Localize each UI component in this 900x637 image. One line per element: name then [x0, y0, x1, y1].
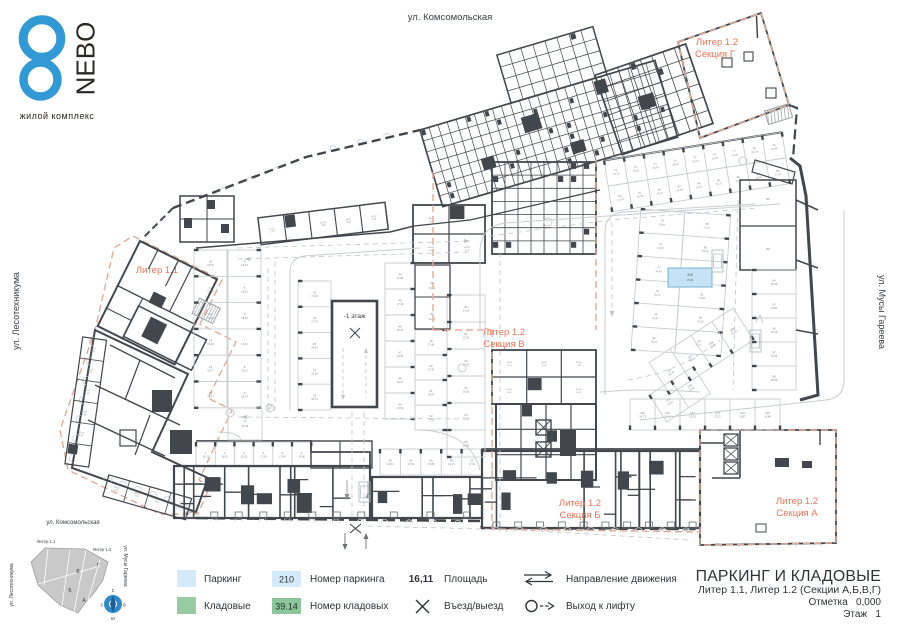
svg-text:13: 13: [209, 339, 213, 343]
svg-text:51: 51: [429, 389, 433, 393]
svg-text:ул. Комсомольская: ул. Комсомольская: [408, 12, 493, 23]
svg-text:ул. Лесотехникума: ул. Лесотехникума: [11, 272, 21, 350]
svg-text:Литер 1.2: Литер 1.2: [776, 496, 818, 507]
svg-text:14,49: 14,49: [655, 269, 662, 273]
svg-text:4: 4: [262, 451, 264, 455]
svg-text:45: 45: [398, 299, 402, 303]
svg-text:ПАРКИНГ И КЛАДОВЫЕ: ПАРКИНГ И КЛАДОВЫЕ: [696, 568, 881, 585]
svg-text:13,20: 13,20: [463, 417, 470, 421]
svg-text:Секция В: Секция В: [483, 339, 524, 350]
svg-text:4,78: 4,78: [134, 495, 139, 498]
svg-text:13,68: 13,68: [298, 455, 305, 459]
svg-text:9,58: 9,58: [542, 365, 547, 367]
svg-text:Г: Г: [97, 563, 100, 569]
svg-text:3,80: 3,80: [321, 225, 326, 228]
svg-text:17,40: 17,40: [469, 462, 476, 466]
svg-text:7: 7: [244, 339, 246, 343]
svg-text:13,30: 13,30: [689, 415, 696, 419]
svg-text:18: 18: [313, 290, 317, 294]
svg-text:7,90: 7,90: [577, 365, 582, 367]
svg-text:22: 22: [313, 394, 317, 398]
svg-text:42.03: 42.03: [576, 389, 582, 391]
svg-text:50.09: 50.09: [428, 247, 434, 249]
svg-text:13,11: 13,11: [241, 368, 248, 372]
svg-text:104: 104: [740, 411, 745, 415]
svg-text:14,27: 14,27: [397, 380, 404, 384]
svg-text:60: 60: [464, 305, 468, 309]
svg-text:13,70: 13,70: [654, 292, 661, 296]
svg-text:13,43: 13,43: [279, 455, 286, 459]
svg-text:13,26: 13,26: [463, 309, 470, 313]
svg-text:15,56: 15,56: [771, 282, 778, 286]
svg-text:Направление движения: Направление движения: [566, 574, 677, 585]
svg-text:54: 54: [409, 459, 413, 463]
svg-text:64: 64: [464, 413, 468, 417]
svg-text:14,73: 14,73: [639, 415, 646, 419]
svg-text:15,59: 15,59: [702, 249, 709, 253]
svg-text:6: 6: [301, 451, 303, 455]
svg-text:61: 61: [464, 332, 468, 336]
svg-text:48: 48: [398, 377, 402, 381]
svg-text:16,54: 16,54: [397, 406, 404, 410]
svg-text:Литер 1.2: Литер 1.2: [483, 327, 525, 338]
svg-text:13,72: 13,72: [714, 415, 721, 419]
svg-text:15: 15: [209, 391, 213, 395]
svg-text:15,89: 15,89: [428, 462, 435, 466]
svg-text:13,47: 13,47: [652, 316, 659, 320]
svg-text:3: 3: [243, 451, 245, 455]
svg-text:19: 19: [313, 316, 317, 320]
svg-text:14: 14: [209, 365, 213, 369]
svg-text:17,49: 17,49: [397, 302, 404, 306]
svg-text:13,19: 13,19: [463, 336, 470, 340]
svg-text:15,54: 15,54: [241, 316, 248, 320]
svg-text:Этаж 1: Этаж 1: [843, 609, 881, 620]
svg-text:18,67: 18,67: [739, 415, 746, 419]
svg-text:17,38: 17,38: [260, 455, 267, 459]
svg-text:ул. Комсомольская: ул. Комсомольская: [46, 520, 99, 526]
svg-text:жилой комплекс: жилой комплекс: [20, 111, 95, 121]
svg-text:11: 11: [209, 286, 212, 290]
svg-text:63: 63: [464, 386, 468, 390]
svg-text:13,65: 13,65: [311, 371, 318, 375]
svg-text:15,20: 15,20: [241, 455, 248, 459]
svg-text:210: 210: [279, 575, 294, 585]
svg-text:77: 77: [657, 266, 661, 270]
svg-text:100: 100: [640, 411, 645, 415]
svg-text:39.14: 39.14: [275, 602, 298, 612]
svg-text:95: 95: [772, 303, 776, 307]
svg-text:ул. Мусы Гареева: ул. Мусы Гареева: [122, 545, 128, 586]
svg-text:14,15: 14,15: [448, 462, 455, 466]
svg-text:16,69: 16,69: [658, 222, 665, 226]
svg-text:4,10: 4,10: [465, 250, 470, 252]
svg-text:18,21: 18,21: [222, 455, 229, 459]
svg-text:Секция А: Секция А: [776, 508, 818, 519]
svg-text:5,42: 5,42: [577, 392, 582, 394]
svg-text:14,47: 14,47: [207, 395, 214, 399]
svg-text:6: 6: [244, 312, 246, 316]
svg-text:20: 20: [313, 342, 317, 346]
svg-text:Секция Г: Секция Г: [695, 49, 735, 60]
svg-text:18,37: 18,37: [397, 328, 404, 332]
svg-text:18,47: 18,47: [428, 393, 435, 397]
svg-text:14,35: 14,35: [207, 316, 214, 320]
svg-text:Литер 1.2: Литер 1.2: [559, 498, 601, 509]
svg-text:101: 101: [665, 411, 670, 415]
svg-text:18,73: 18,73: [311, 397, 318, 401]
svg-text:44: 44: [398, 273, 402, 277]
svg-text:13,84: 13,84: [698, 296, 705, 300]
svg-text:94: 94: [772, 279, 776, 283]
svg-text:5,76: 5,76: [85, 392, 90, 395]
svg-text:13,42: 13,42: [241, 342, 248, 346]
svg-text:53: 53: [389, 459, 393, 463]
svg-text:17,41: 17,41: [428, 368, 435, 372]
svg-text:12: 12: [209, 312, 213, 316]
svg-text:97: 97: [772, 351, 776, 355]
svg-text:49: 49: [429, 339, 433, 343]
svg-text:56: 56: [450, 459, 454, 463]
svg-text:13,68: 13,68: [428, 418, 435, 422]
svg-text:92: 92: [699, 316, 703, 320]
svg-text:Литер 1.2: Литер 1.2: [696, 37, 738, 48]
svg-text:в: в: [123, 603, 126, 609]
svg-text:9: 9: [244, 391, 246, 395]
svg-text:7,37: 7,37: [270, 231, 275, 234]
svg-text:17,63: 17,63: [407, 462, 414, 466]
svg-text:105: 105: [765, 411, 770, 415]
svg-text:Кладовые: Кладовые: [204, 601, 251, 612]
svg-text:62: 62: [464, 359, 468, 363]
svg-text:Литер 1.2: Литер 1.2: [93, 547, 112, 552]
svg-text:15,90: 15,90: [207, 342, 214, 346]
svg-text:NEBO: NEBO: [71, 22, 101, 96]
svg-text:42.09: 42.09: [507, 362, 513, 364]
svg-text:Отметка 0,000: Отметка 0,000: [808, 597, 881, 608]
svg-text:17,60: 17,60: [397, 276, 404, 280]
svg-text:4,36: 4,36: [507, 392, 512, 394]
svg-text:15,12: 15,12: [202, 455, 209, 459]
svg-text:з: з: [100, 603, 103, 609]
svg-text:16,48: 16,48: [764, 415, 771, 419]
svg-text:96: 96: [772, 327, 776, 331]
svg-text:Выход к лифту: Выход к лифту: [566, 600, 635, 612]
svg-text:210: 210: [687, 273, 693, 277]
svg-text:15,77: 15,77: [207, 368, 214, 372]
svg-text:3,39: 3,39: [82, 414, 87, 417]
svg-text:5: 5: [282, 451, 284, 455]
svg-text:ул. Мусы Гареева: ул. Мусы Гареева: [877, 275, 887, 349]
svg-text:8: 8: [244, 365, 246, 369]
svg-text:18,75: 18,75: [771, 330, 778, 334]
svg-text:13,30: 13,30: [207, 263, 214, 267]
svg-text:49: 49: [398, 403, 402, 407]
svg-text:18,32: 18,32: [241, 289, 248, 293]
svg-text:52: 52: [429, 414, 433, 418]
svg-text:46: 46: [398, 325, 402, 329]
svg-text:88: 88: [705, 222, 709, 226]
svg-text:Номер паркинга: Номер паркинга: [310, 574, 385, 585]
svg-text:Въезд/выезд: Въезд/выезд: [444, 601, 503, 612]
svg-text:3,70: 3,70: [507, 365, 512, 367]
svg-text:8: 8: [244, 419, 246, 423]
svg-text:25,29: 25,29: [242, 424, 249, 428]
svg-text:16,74: 16,74: [241, 263, 248, 267]
svg-text:14,53: 14,53: [397, 354, 404, 358]
svg-text:18,56: 18,56: [771, 378, 778, 382]
svg-text:55: 55: [429, 459, 433, 463]
svg-text:14,87: 14,87: [771, 306, 778, 310]
svg-text:86: 86: [766, 197, 770, 201]
svg-text:2: 2: [224, 451, 226, 455]
svg-text:Литер 1.1: Литер 1.1: [37, 539, 56, 544]
svg-text:17,46: 17,46: [428, 343, 435, 347]
svg-text:с: с: [112, 588, 115, 594]
svg-text:15,24: 15,24: [771, 354, 778, 358]
svg-text:14,67: 14,67: [311, 346, 318, 350]
svg-text:ю: ю: [111, 616, 115, 622]
svg-text:15,16: 15,16: [207, 289, 214, 293]
svg-text:Секция Б: Секция Б: [559, 510, 600, 521]
svg-text:23,70: 23,70: [429, 317, 436, 321]
svg-text:75: 75: [660, 219, 664, 223]
svg-text:17,34: 17,34: [311, 294, 318, 298]
svg-text:-1 этаж: -1 этаж: [344, 313, 366, 320]
svg-text:15,36: 15,36: [687, 278, 694, 282]
svg-text:17,67: 17,67: [703, 225, 710, 229]
svg-text:14,31: 14,31: [429, 286, 436, 290]
svg-text:5: 5: [244, 286, 246, 290]
svg-text:13,28: 13,28: [697, 319, 704, 323]
svg-text:13,74: 13,74: [241, 395, 248, 399]
svg-text:89: 89: [766, 247, 770, 251]
svg-text:Площадь: Площадь: [444, 574, 488, 585]
svg-text:13,80: 13,80: [657, 246, 664, 250]
svg-text:79: 79: [654, 312, 658, 316]
svg-text:4,90: 4,90: [347, 221, 352, 224]
svg-text:1: 1: [205, 451, 207, 455]
svg-text:42.05: 42.05: [507, 389, 513, 391]
svg-text:98: 98: [772, 375, 776, 379]
svg-text:50: 50: [429, 364, 433, 368]
svg-text:Паркинг: Паркинг: [204, 574, 242, 585]
svg-text:6,19: 6,19: [175, 507, 180, 510]
svg-text:4: 4: [244, 260, 246, 264]
svg-text:46.06: 46.06: [464, 247, 470, 249]
svg-text:16,30: 16,30: [463, 390, 470, 394]
svg-text:13,53: 13,53: [387, 462, 394, 466]
svg-text:Номер кладовых: Номер кладовых: [310, 601, 388, 612]
svg-text:47: 47: [398, 351, 402, 355]
svg-text:17,70: 17,70: [311, 320, 318, 324]
svg-text:Литер 1.1, Литер 1.2 (Секции А: Литер 1.1, Литер 1.2 (Секции А,Б,В,Г): [698, 584, 881, 596]
svg-text:8,51: 8,51: [155, 501, 160, 504]
svg-text:54.08: 54.08: [541, 362, 547, 364]
svg-text:57: 57: [470, 459, 474, 463]
svg-text:16,11: 16,11: [409, 574, 434, 585]
svg-text:21: 21: [313, 368, 317, 372]
svg-text:10: 10: [209, 260, 213, 264]
svg-text:ул. Лесотехникума: ул. Лесотехникума: [9, 563, 15, 606]
svg-text:49.01: 49.01: [576, 362, 582, 364]
svg-text:5,44: 5,44: [79, 435, 84, 438]
svg-text:3,38: 3,38: [372, 218, 377, 221]
svg-text:16,19: 16,19: [650, 339, 657, 343]
svg-text:65: 65: [464, 440, 468, 444]
